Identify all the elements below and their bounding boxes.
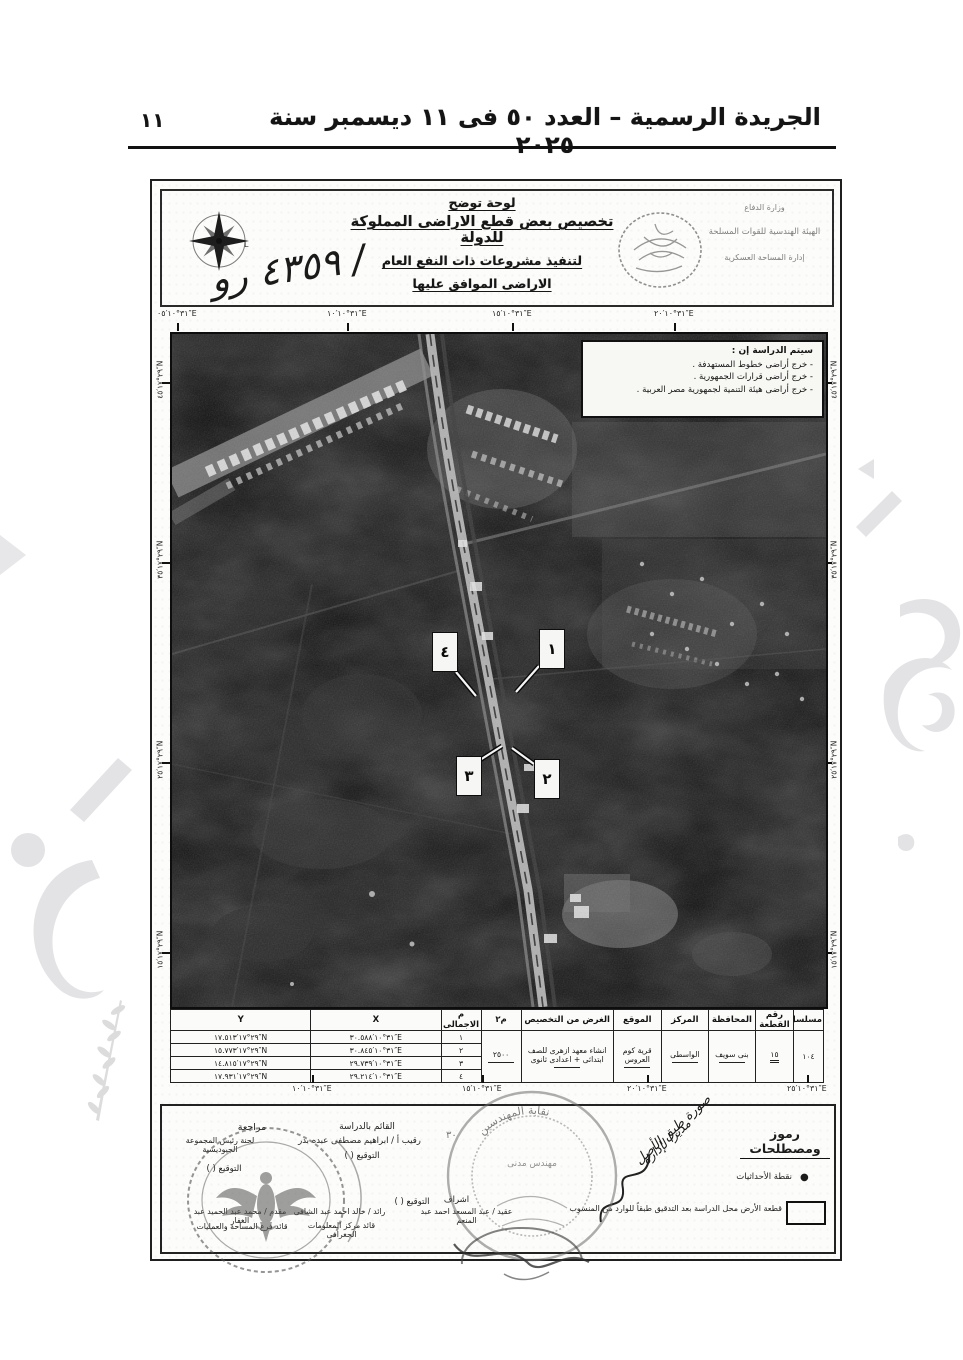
- cell-point-no: ٣: [441, 1057, 481, 1070]
- lat-label-right-4: ٢٩°١٧′١٥″N: [830, 920, 839, 980]
- purpose-value: انشاء معهد ازهرى للصف ابتدائى + اعدادى ث…: [528, 1046, 607, 1064]
- legend-item-3: - خرج أراضى هيئة التنمية لجمهورية مصر ال…: [587, 384, 813, 397]
- scribble-dash: [719, 1062, 745, 1063]
- area-value: ٢٥٠٠: [493, 1050, 509, 1059]
- callout-plot-3: ٣: [456, 756, 482, 796]
- gazette-page: ١١ الجريدة الرسمية – العدد ٥٠ فى ١١ ديسم…: [0, 0, 963, 1360]
- cell-y: ٢٩°١٧′١٧.٥١٣″N: [171, 1031, 311, 1044]
- lon-label-bottom-3: ٣١°١٠′٢٠″E: [612, 1084, 682, 1093]
- th-total: م الاجمالى: [441, 1010, 481, 1031]
- th-plot-no: رقم القطعة: [755, 1010, 793, 1031]
- tick-top-3: [512, 323, 514, 331]
- callout-4-label: ٤: [440, 643, 449, 661]
- th-governorate: المحافظة: [708, 1010, 755, 1031]
- watermark-wheat-spike: [86, 1000, 126, 1121]
- map-frame: سيتم الدراسة إن : - خرج أراضى خطوط المست…: [170, 332, 828, 1009]
- lat-label-left-3: ٢٩°١٧′٢٥″N: [156, 730, 165, 790]
- cell-location: قرية كوم العروس: [613, 1031, 661, 1083]
- plate-title-2: تخصيص بعض قطع الاراضى المملوكة للدولة: [332, 214, 632, 246]
- tick-bottom-1: [312, 1075, 314, 1083]
- cell-governorate: بنى سويف: [708, 1031, 755, 1083]
- watermark-left: [0, 700, 150, 1260]
- symbols-heading: رموز ومصطلحات: [740, 1126, 830, 1159]
- cell-x: ٣١°١٠′٢٩.٢١٤″E: [311, 1070, 441, 1083]
- callout-plot-1: ١: [539, 629, 565, 669]
- tick-left-3: [162, 762, 170, 764]
- title-block: L ٤٣٥٩ رو / لوحة توضح تخصيص بعض قطع الار…: [160, 189, 834, 307]
- symbol-plot-marker: [786, 1201, 826, 1225]
- document-sheet: L ٤٣٥٩ رو / لوحة توضح تخصيص بعض قطع الار…: [150, 179, 842, 1261]
- cell-y: ٢٩°١٧′١٧.٩٣١″N: [171, 1070, 311, 1083]
- legend-heading: سيتم الدراسة إن :: [587, 345, 813, 359]
- gazette-header: الجريدة الرسمية – العدد ٥٠ فى ١١ ديسمبر …: [255, 103, 835, 159]
- page-number: ١١: [140, 108, 164, 132]
- symbol-point-marker: ●: [800, 1172, 809, 1183]
- table-row: ١٠٤ ١٥ بنى سويف الواسطى قرية كوم العروس …: [171, 1031, 824, 1044]
- svg-text:٣٠: ٣٠: [446, 1130, 457, 1141]
- header-rule: [128, 146, 836, 149]
- tick-left-1: [162, 382, 170, 384]
- agency-stamp-icon: [614, 209, 706, 291]
- tick-top-4: [674, 323, 676, 331]
- lon-label-top-1: ٣١°١٠′٠٥″E: [142, 309, 212, 318]
- bottom-stamp-scribble: [444, 1224, 599, 1284]
- tick-bottom-2: [482, 1075, 484, 1083]
- republic-eagle-stamp: [186, 1122, 366, 1282]
- tick-bottom-3: [647, 1075, 649, 1083]
- callout-plot-2: ٢: [534, 759, 560, 799]
- callout-3-label: ٣: [464, 767, 473, 785]
- scribble-dash: [624, 1067, 650, 1068]
- center-value: الواسطى: [670, 1050, 699, 1059]
- svg-text:مهندس مدنى: مهندس مدنى: [507, 1159, 557, 1169]
- cell-y: ٢٩°١٧′١٤.٨١٥″N: [171, 1057, 311, 1070]
- legend-box: سيتم الدراسة إن : - خرج أراضى خطوط المست…: [581, 340, 824, 418]
- callout-2-label: ٢: [542, 770, 551, 788]
- cell-point-no: ٢: [441, 1044, 481, 1057]
- lon-label-bottom-4: ٣١°١٠′٢٥″E: [772, 1084, 842, 1093]
- cell-plot-no: ١٥: [755, 1031, 793, 1083]
- governorate-value: بنى سويف: [715, 1050, 748, 1059]
- cell-x: ٣١°١٠′٣٠.٥٨٨″E: [311, 1031, 441, 1044]
- lon-label-top-3: ٣١°١٠′١٥″E: [477, 309, 547, 318]
- agency-line-1: وزارة الدفاع: [707, 203, 822, 212]
- cell-y: ٢٩°١٧′١٥.٧٧٣″N: [171, 1044, 311, 1057]
- scribble-dash: [554, 1067, 580, 1068]
- th-center: المركز: [661, 1010, 708, 1031]
- scribble-dash: [488, 1062, 514, 1063]
- tick-left-2: [162, 562, 170, 564]
- svg-text:L: L: [244, 240, 249, 249]
- cell-area: ٢٥٠٠: [481, 1031, 521, 1083]
- coords-table: مسلسل رقم القطعة المحافظة المركز الموقع …: [170, 1009, 824, 1083]
- footer-block: رموز ومصطلحات ● نقطة الأحداثيات قطعة الأ…: [160, 1104, 836, 1254]
- th-x: X: [311, 1010, 441, 1031]
- cell-x: ٣١°١٠′٣٠.٨٤٥″E: [311, 1044, 441, 1057]
- tick-top-2: [347, 323, 349, 331]
- lat-label-right-2: ٢٩°١٧′٣٥″N: [830, 530, 839, 590]
- plot-no-value: ١٥: [770, 1050, 778, 1063]
- agency-line-3: إدارة المساحة العسكرية: [707, 253, 822, 262]
- cell-x: ٣١°١٠′٢٩.٧٣٩″E: [311, 1057, 441, 1070]
- agency-line-2: الهيئة الهندسية للقوات المسلحة: [702, 227, 827, 237]
- watermark-right: [840, 455, 963, 875]
- legend-item-2: - خرج أراضى قرارات الجمهورية .: [587, 371, 813, 384]
- lon-label-top-2: ٣١°١٠′١٠″E: [312, 309, 382, 318]
- callout-plot-4: ٤: [432, 632, 458, 672]
- lon-label-top-4: ٣١°١٠′٢٠″E: [639, 309, 709, 318]
- th-y: Y: [171, 1010, 311, 1031]
- th-purpose: الغرض من التخصيص: [521, 1010, 613, 1031]
- scribble-dash: [672, 1062, 698, 1063]
- th-serial: مسلسل: [793, 1010, 823, 1031]
- cell-point-no: ٤: [441, 1070, 481, 1083]
- svg-text:نقابة المهندسين: نقابة المهندسين: [475, 1104, 550, 1138]
- lat-label-left-1: ٢٩°١٧′٤٥″N: [156, 350, 165, 410]
- th-area: م٢: [481, 1010, 521, 1031]
- eagle-icon: [216, 1172, 316, 1242]
- plate-title-3: لتنفيذ مشروعات ذات النفع العام: [332, 253, 632, 268]
- cell-point-no: ١: [441, 1031, 481, 1044]
- cell-center: الواسطى: [661, 1031, 708, 1083]
- legend-item-1: - خرج أراضى خطوط المستهدفة .: [587, 359, 813, 372]
- tick-left-4: [162, 952, 170, 954]
- tick-top-1: [177, 323, 179, 331]
- satellite-image: [172, 334, 826, 1007]
- th-location: الموقع: [613, 1010, 661, 1031]
- lat-label-right-3: ٢٩°١٧′٢٥″N: [830, 730, 839, 790]
- callout-1-label: ١: [547, 640, 556, 658]
- plate-title-4: الاراضى الموافق عليها: [332, 276, 632, 291]
- lat-label-right-1: ٢٩°١٧′٤٥″N: [830, 350, 839, 410]
- plate-title-1: لوحة توضح: [332, 195, 632, 210]
- symbol-point-label: نقطة الأحداثيات: [714, 1172, 792, 1182]
- lat-label-left-4: ٢٩°١٧′١٥″N: [156, 920, 165, 980]
- cell-purpose: انشاء معهد ازهرى للصف ابتدائى + اعدادى ث…: [521, 1031, 613, 1083]
- watermark-left-wedge: [0, 535, 26, 575]
- lon-label-bottom-1: ٣١°١٠′١٠″E: [277, 1084, 347, 1093]
- tick-bottom-4: [807, 1075, 809, 1083]
- lat-label-left-2: ٢٩°١٧′٣٥″N: [156, 530, 165, 590]
- location-value: قرية كوم العروس: [623, 1046, 652, 1064]
